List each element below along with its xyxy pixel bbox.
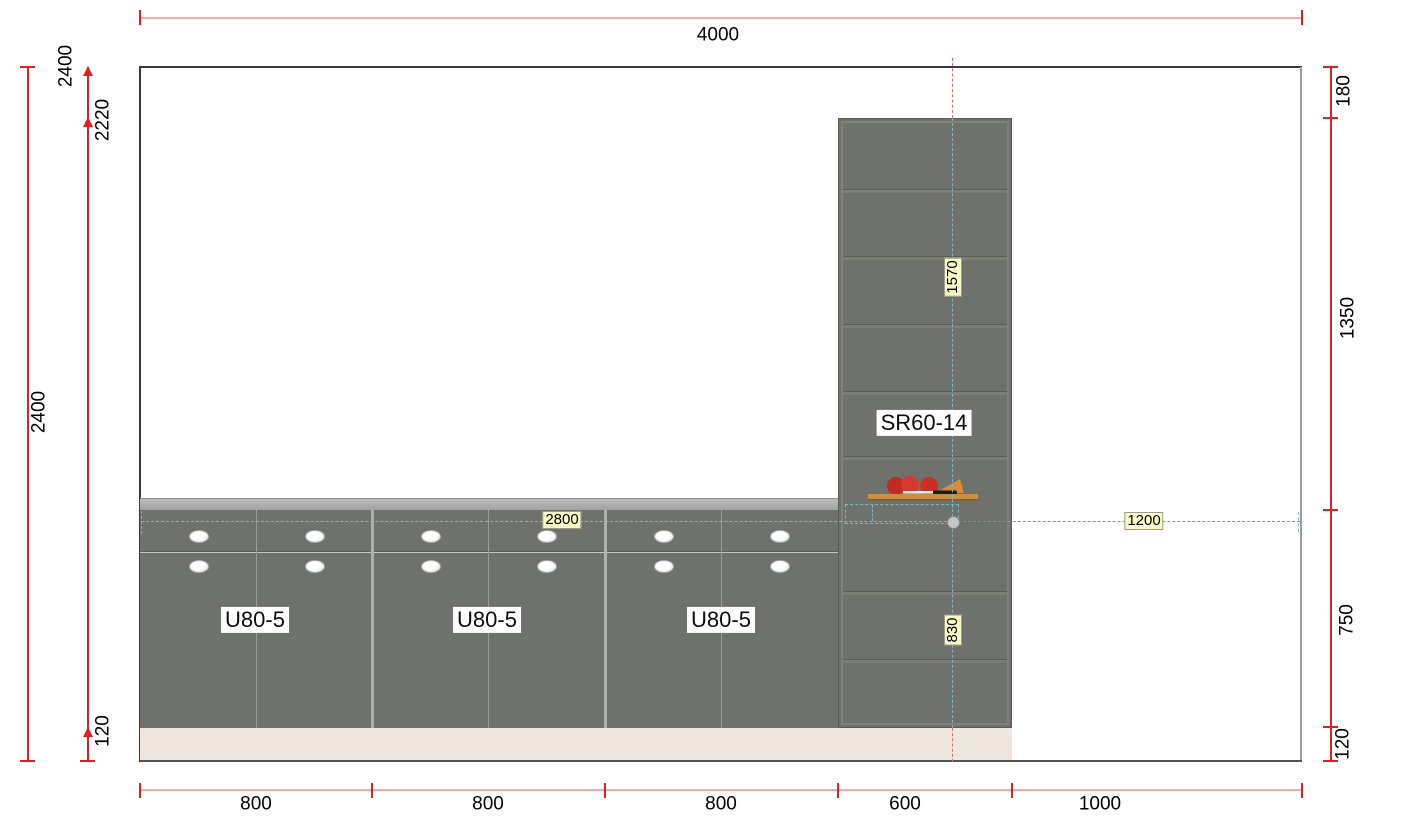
- shelf-division: [843, 189, 1007, 193]
- dim-tick: [371, 783, 373, 798]
- dim-bottom-1: 800: [240, 795, 272, 814]
- dim-left-running-2220: 2220: [94, 99, 113, 141]
- elevation-drawing-canvas: U80-5 U80-5 U80-5 SR60-14 2800 1200 1570…: [0, 0, 1401, 824]
- dim-line-right: [1330, 67, 1332, 762]
- selection-outline-divider: [872, 505, 873, 521]
- handle-icon: [654, 530, 674, 543]
- dim-arrow-icon: [83, 66, 93, 76]
- dim-line-top: [140, 17, 1302, 19]
- dim-bottom-5: 1000: [1079, 795, 1121, 814]
- shelf-division: [843, 324, 1007, 328]
- centerline-dashed-bottom: [952, 728, 953, 762]
- dim-tick: [139, 10, 141, 25]
- dim-bottom-4: 600: [889, 795, 921, 814]
- dim-right-1350: 1350: [1339, 297, 1358, 339]
- guide-end-right: [1298, 512, 1299, 532]
- shelf-division: [843, 456, 1007, 460]
- drawer-divider-highlight: [140, 552, 838, 553]
- dim-tick: [837, 783, 839, 798]
- handle-icon: [189, 530, 209, 543]
- dim-left-overall: 2400: [30, 391, 49, 433]
- handle-icon: [421, 560, 441, 573]
- selection-outline: [845, 504, 959, 524]
- dim-line-bottom: [140, 789, 1302, 791]
- handle-icon: [421, 530, 441, 543]
- handle-icon: [189, 560, 209, 573]
- dim-line-left-inner: [87, 67, 89, 762]
- handle-icon: [770, 560, 790, 573]
- handle-icon: [305, 560, 325, 573]
- dim-tick: [1323, 117, 1338, 119]
- dim-right-750: 750: [1338, 604, 1357, 636]
- dim-arrow-icon: [83, 117, 93, 127]
- tall-lower-height-field[interactable]: 830: [944, 614, 962, 645]
- right-offset-field[interactable]: 1200: [1124, 512, 1163, 530]
- dim-tick: [139, 783, 141, 798]
- floor-line: [140, 760, 1302, 762]
- guide-end-left: [141, 506, 142, 534]
- dim-arrow-icon: [83, 727, 93, 737]
- wall-top-line: [139, 66, 1302, 68]
- shelf-division: [843, 591, 1007, 595]
- handle-icon: [537, 560, 557, 573]
- dim-right-180: 180: [1335, 75, 1354, 107]
- dim-top-total: 4000: [697, 26, 739, 45]
- dim-tick: [604, 783, 606, 798]
- centerline-dashed-top: [952, 58, 953, 118]
- plinth: [140, 728, 1012, 760]
- center-marker-icon[interactable]: [947, 516, 960, 529]
- handle-icon: [537, 530, 557, 543]
- counter-width-field[interactable]: 2800: [542, 511, 581, 529]
- shelf-division: [843, 391, 1007, 395]
- dim-right-120: 120: [1334, 728, 1353, 760]
- tall-upper-height-field[interactable]: 1570: [944, 257, 962, 296]
- cutting-board-food-icon: [865, 472, 985, 502]
- shelf-division: [843, 659, 1007, 663]
- base-cabinet-label-1[interactable]: U80-5: [221, 607, 289, 633]
- cabinet-boundary: [371, 510, 374, 728]
- dim-tick: [1323, 66, 1338, 68]
- dim-tick: [1301, 783, 1303, 798]
- tall-cabinet-label[interactable]: SR60-14: [877, 410, 972, 436]
- base-cabinet-label-2[interactable]: U80-5: [453, 607, 521, 633]
- dim-tick: [1323, 509, 1338, 511]
- wall-right-line: [1300, 67, 1302, 762]
- dim-tick: [1323, 760, 1338, 762]
- handle-icon: [770, 530, 790, 543]
- dim-tick: [80, 760, 95, 762]
- dim-left-running-2400: 2400: [57, 45, 76, 87]
- cabinet-boundary: [604, 510, 607, 728]
- dim-bottom-2: 800: [472, 795, 504, 814]
- dim-tick: [20, 66, 35, 68]
- dim-bottom-3: 800: [705, 795, 737, 814]
- base-cabinet-label-3[interactable]: U80-5: [687, 607, 755, 633]
- dim-left-running-120: 120: [94, 715, 113, 747]
- handle-icon: [305, 530, 325, 543]
- shelf-division: [843, 256, 1007, 260]
- dim-tick: [1301, 10, 1303, 25]
- dim-tick: [20, 760, 35, 762]
- handle-icon: [654, 560, 674, 573]
- dim-tick: [1011, 783, 1013, 798]
